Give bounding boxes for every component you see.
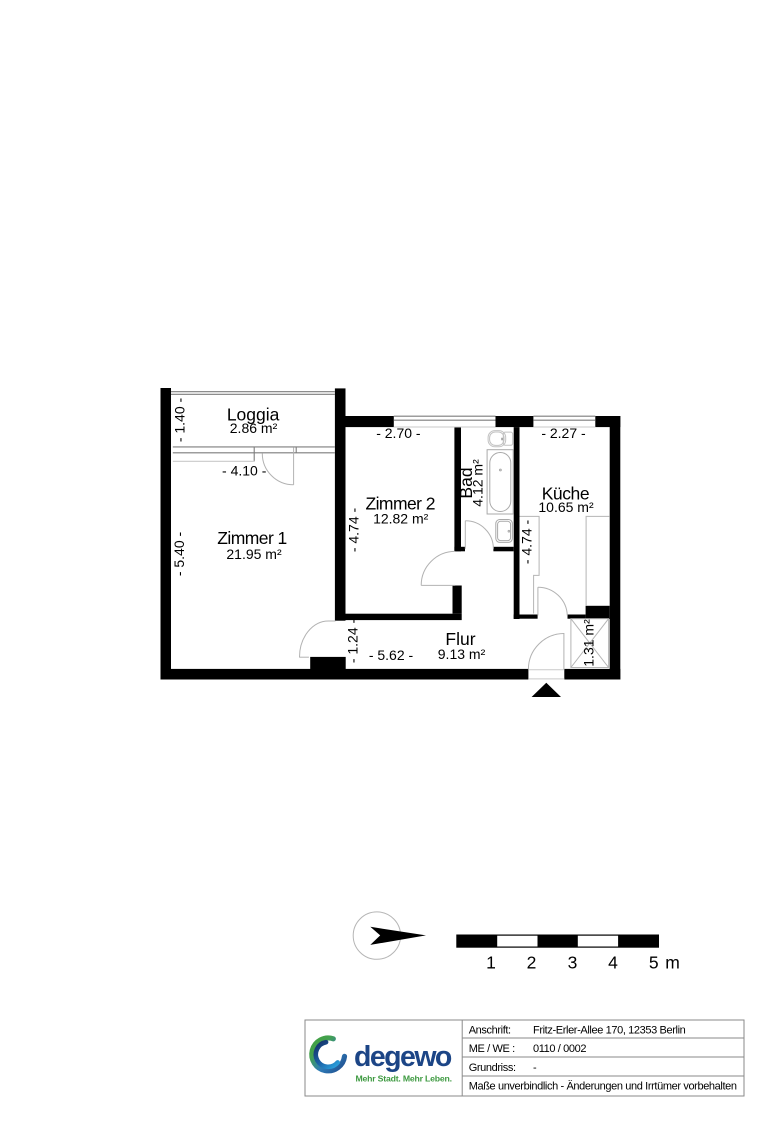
svg-text:10.65 m²: 10.65 m²	[538, 499, 594, 515]
svg-text:Anschrift:: Anschrift:	[469, 1024, 511, 1036]
svg-text:- 2.27 -: - 2.27 -	[541, 425, 586, 441]
svg-text:4.12 m²: 4.12 m²	[469, 459, 485, 507]
svg-text:ME / WE :: ME / WE :	[469, 1043, 515, 1055]
svg-text:2.86 m²: 2.86 m²	[230, 420, 278, 436]
svg-text:2: 2	[527, 953, 537, 973]
svg-text:12.82 m²: 12.82 m²	[373, 511, 429, 527]
svg-text:Grundriss:: Grundriss:	[469, 1062, 516, 1074]
svg-text:4: 4	[608, 953, 618, 973]
svg-text:Maße unverbindlich - Änderunge: Maße unverbindlich - Änderungen und Irrt…	[469, 1081, 737, 1093]
svg-text:- 2.70 -: - 2.70 -	[376, 425, 421, 441]
svg-text:1: 1	[486, 953, 496, 973]
svg-text:- 5.62 -: - 5.62 -	[369, 647, 414, 663]
svg-text:- 4.74 -: - 4.74 -	[518, 519, 534, 564]
svg-text:5: 5	[649, 953, 659, 973]
svg-text:- 1.24 -: - 1.24 -	[344, 618, 360, 663]
svg-text:9.13 m²: 9.13 m²	[438, 646, 486, 662]
svg-text:- 1.40 -: - 1.40 -	[172, 397, 188, 442]
svg-text:Fritz-Erler-Allee 170, 12353 B: Fritz-Erler-Allee 170, 12353 Berlin	[533, 1024, 686, 1036]
svg-text:- 5.40 -: - 5.40 -	[171, 531, 187, 576]
svg-text:m: m	[665, 953, 680, 973]
svg-text:3: 3	[568, 953, 578, 973]
svg-text:- 4.10 -: - 4.10 -	[222, 463, 267, 479]
svg-text:21.95 m²: 21.95 m²	[226, 546, 282, 562]
svg-text:degewo: degewo	[354, 1041, 452, 1073]
svg-text:- 4.74 -: - 4.74 -	[345, 507, 361, 552]
svg-text:0110 / 0002: 0110 / 0002	[533, 1043, 586, 1055]
svg-text:Mehr Stadt. Mehr Leben.: Mehr Stadt. Mehr Leben.	[356, 1073, 452, 1083]
svg-text:1.31 m²: 1.31 m²	[580, 619, 596, 667]
